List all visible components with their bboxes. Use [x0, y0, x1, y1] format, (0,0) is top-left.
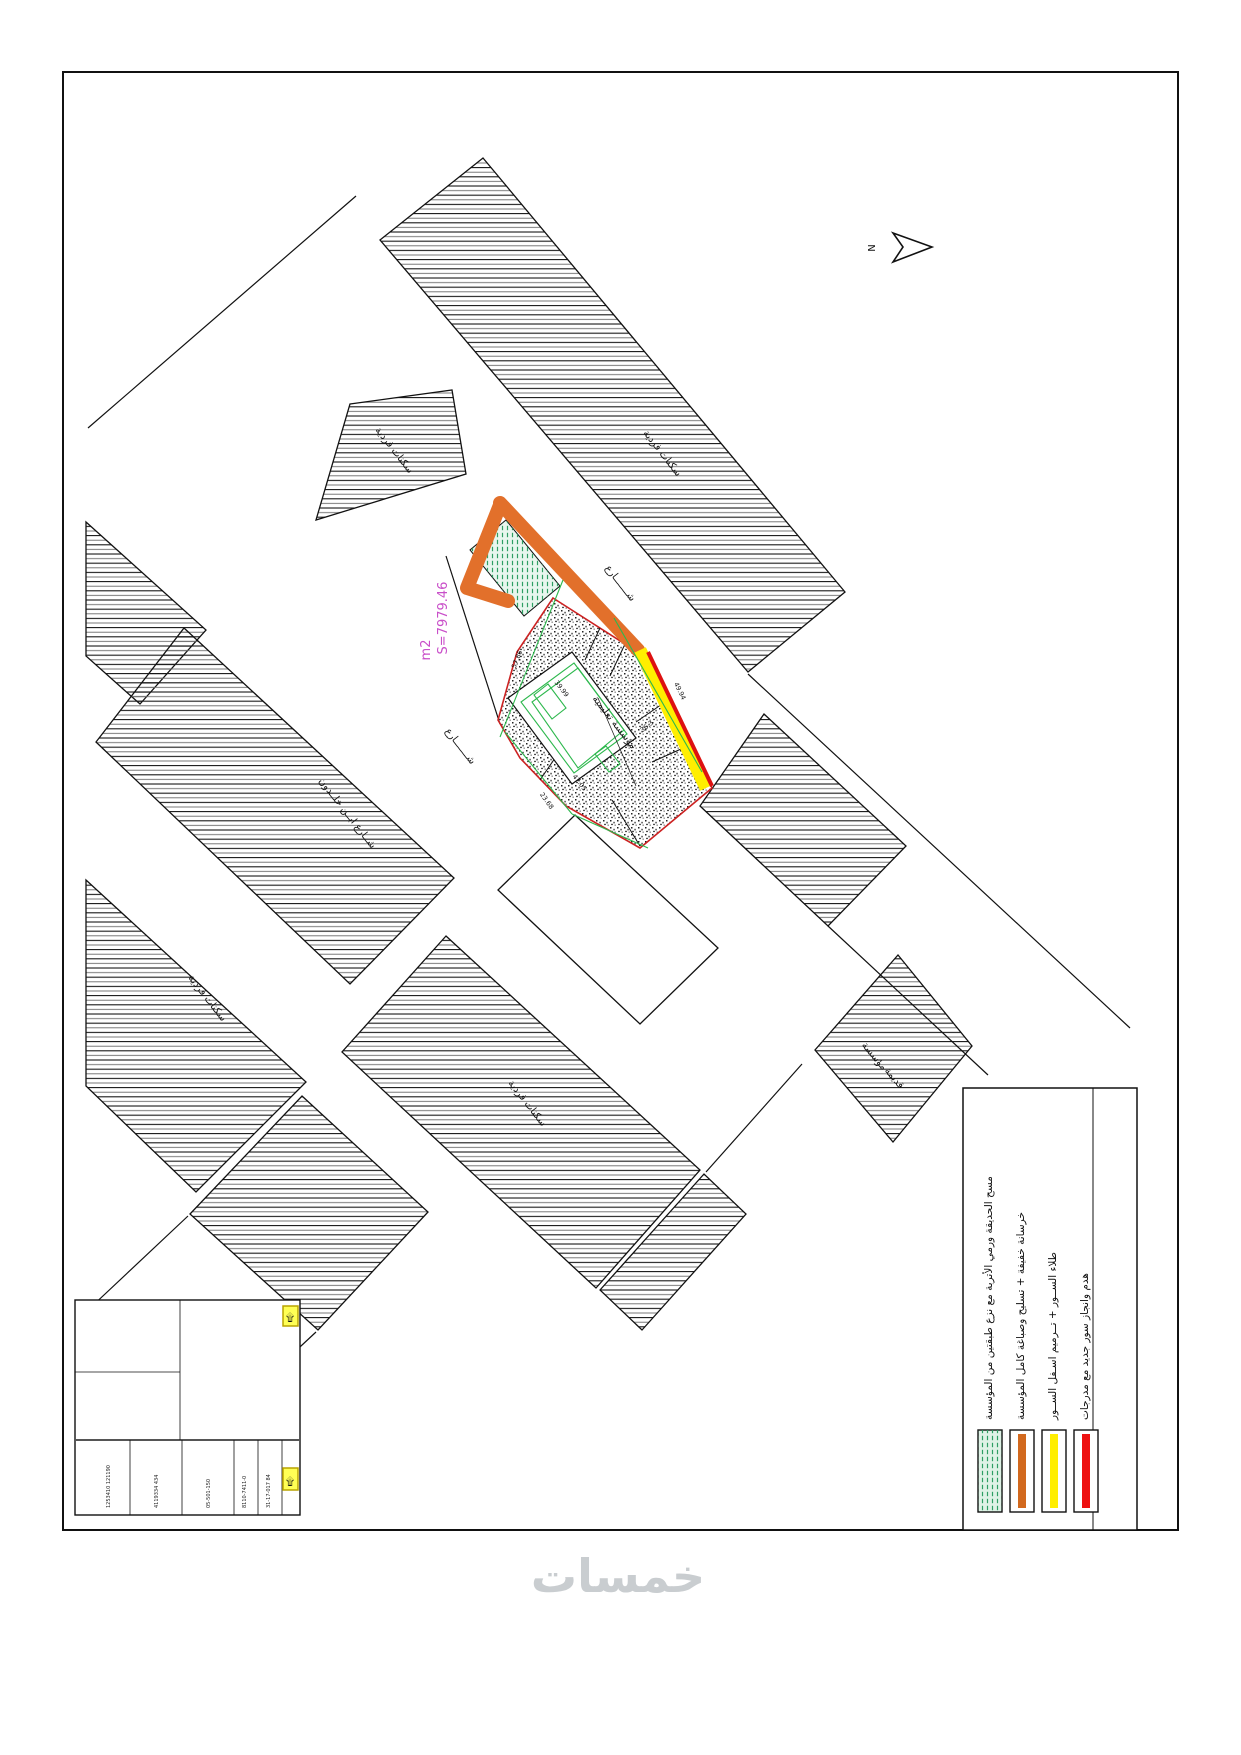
legend: مسح الحديقة ورمي الأتربة مع نزع طبقتين م…: [963, 1088, 1137, 1530]
title-block: 1253410 121190 4119334 434 05-501-150 81…: [75, 1300, 300, 1515]
block-left-middle: [96, 628, 454, 984]
legend-swatch-orange-bar: [1018, 1434, 1026, 1508]
legend-swatch-red-bar: [1082, 1434, 1090, 1508]
title-block-micro-1: 1253410 121190: [106, 1465, 112, 1508]
title-block-micro-2: 4119334 434: [154, 1475, 160, 1508]
emblem-glyph-top-icon: ۩: [286, 1311, 295, 1324]
street-line: [88, 196, 356, 428]
title-block-micro-4: 8110-7411-0: [242, 1476, 248, 1508]
block-right-middle: [700, 714, 906, 926]
dim-frontage: 49.94: [672, 681, 687, 701]
north-arrow: N: [865, 233, 932, 262]
site-plan-svg: N سكنات فردية سكنات فردية سكنات فردية سك…: [0, 0, 1241, 1755]
legend-entry-text-green: مسح الحديقة ورمي الأتربة مع نزع طبقتين م…: [982, 1176, 995, 1420]
watermark-khamsat: خمسات: [531, 1549, 705, 1603]
legend-entry-text-yellow: طلاء الســور + تــرميم اسـفل الســور: [1047, 1252, 1059, 1421]
plot-area-unit: m2: [419, 640, 434, 661]
emblem-glyph-bottom-icon: ۩: [286, 1475, 295, 1488]
street-line: [706, 1064, 802, 1172]
dim-bottom-left: 23.68: [538, 791, 555, 811]
title-block-micro-5: 31-17-017 84: [266, 1474, 272, 1508]
legend-entry-text-red: هدم وانجاز سور جديد مع مدرجات: [1079, 1273, 1091, 1420]
drawing-sheet: N سكنات فردية سكنات فردية سكنات فردية سك…: [0, 0, 1241, 1755]
street-label-1: شـــــــارع: [602, 563, 637, 603]
block-old-institution: [815, 955, 972, 1142]
north-label: N: [865, 244, 876, 251]
block-empty-white: [498, 815, 718, 1024]
legend-swatch-green-hatch: [978, 1430, 1002, 1512]
title-block-micro-3: 05-501-150: [206, 1479, 212, 1508]
legend-swatch-yellow-bar: [1050, 1434, 1058, 1508]
legend-entry-text-orange: خرسانة خفيفة + تسليح وصباغة كامل المؤسسة: [1015, 1212, 1027, 1420]
street-line: [88, 1216, 188, 1310]
plot-area-value: S=7979.46: [436, 582, 451, 655]
street-label-2: شـــــــارع: [442, 726, 477, 766]
north-arrow-icon: [893, 233, 932, 262]
